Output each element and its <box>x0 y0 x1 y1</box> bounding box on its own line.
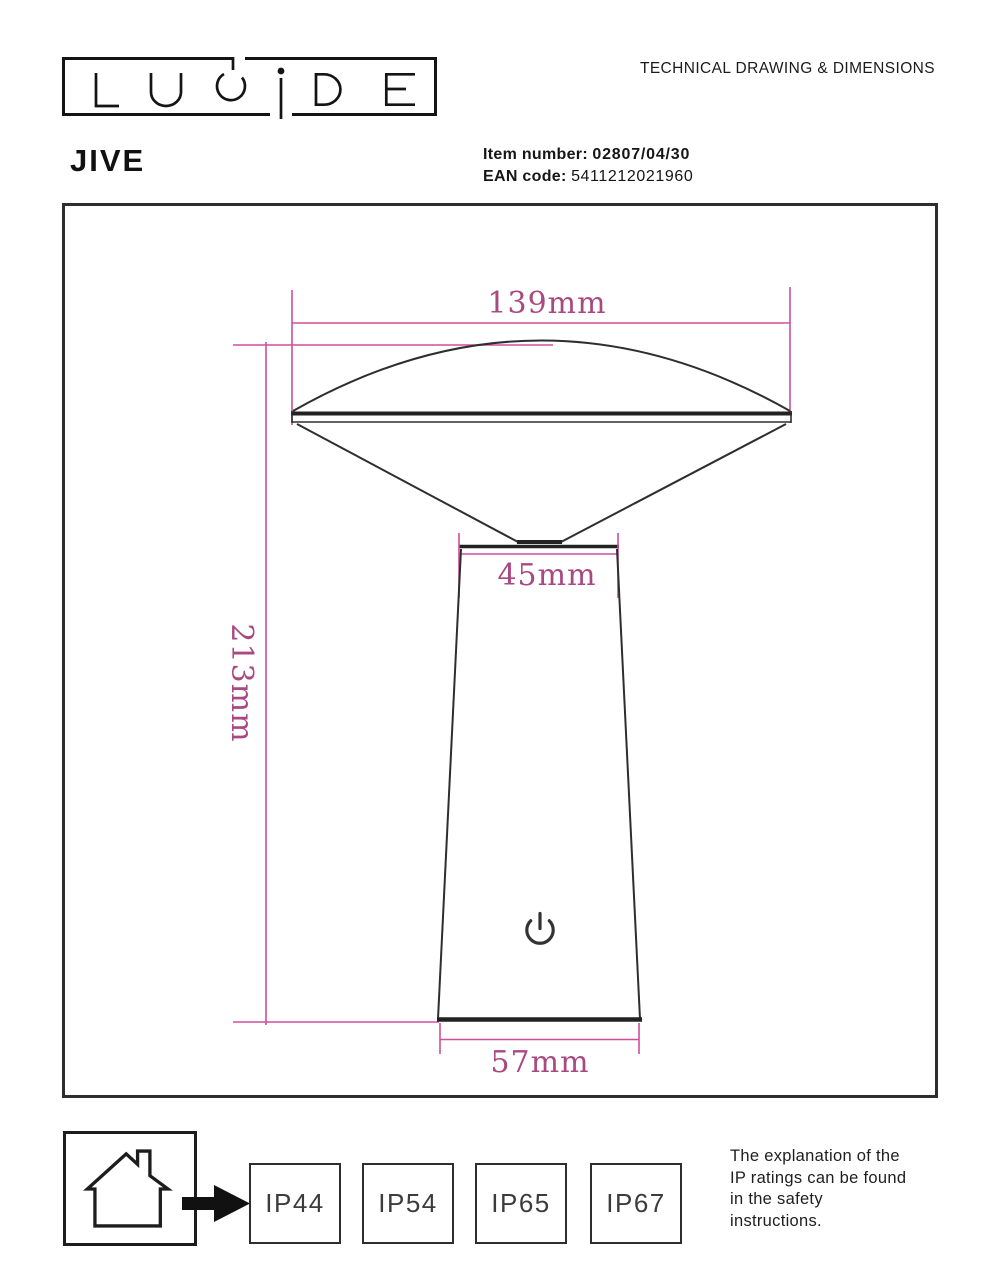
lamp-shade-dome <box>293 341 790 412</box>
ean-code-label: EAN code: <box>483 168 567 185</box>
ip-rating-badge-ip67: IP67 <box>590 1163 682 1244</box>
lamp-shade-cone-left <box>297 424 518 542</box>
ip-note-line-1: The explanation of the <box>730 1146 906 1168</box>
technical-drawing: 139mm 213mm 45mm 57mm <box>62 203 938 1098</box>
power-icon <box>527 914 553 944</box>
logo-letter-D <box>315 73 341 106</box>
lucide-logo <box>62 57 437 125</box>
lamp-shade-cone-right <box>561 424 786 542</box>
logo-letter-L <box>96 73 119 106</box>
indoor-use-box <box>63 1131 197 1246</box>
dim-139-label: 139mm <box>487 286 606 321</box>
house-icon <box>66 1134 194 1243</box>
ip-rating-badge-ip44: IP44 <box>249 1163 341 1244</box>
ip44-label: IP44 <box>265 1188 325 1219</box>
item-number-label: Item number: <box>483 146 588 163</box>
technical-drawing-page: { "header": { "brand": "LUCIDE", "logo_l… <box>0 0 992 1280</box>
ip-note-line-2: IP ratings can be found <box>730 1168 906 1190</box>
dim-57-label: 57mm <box>490 1045 589 1080</box>
drawing-frame <box>64 205 937 1097</box>
ean-code-row: EAN code: 5411212021960 <box>483 166 693 188</box>
lamp-body-left-edge <box>438 549 461 1019</box>
dim-213-label: 213mm <box>224 623 259 742</box>
logo-letter-i-dot <box>278 68 285 75</box>
dim-45-label: 45mm <box>497 558 596 593</box>
logo-box-border-sides <box>64 57 436 116</box>
arrow-right-icon <box>180 1183 252 1225</box>
lamp-body-right-edge <box>617 549 640 1019</box>
ip65-label: IP65 <box>491 1188 551 1219</box>
ip67-label: IP67 <box>606 1188 666 1219</box>
logo-letter-E <box>386 74 415 104</box>
ip-rating-badge-ip54: IP54 <box>362 1163 454 1244</box>
document-title: TECHNICAL DRAWING & DIMENSIONS <box>560 60 935 78</box>
logo-letter-U <box>151 73 181 106</box>
item-info-block: Item number: 02807/04/30 EAN code: 54112… <box>483 144 693 188</box>
ip-note-line-4: instructions. <box>730 1211 906 1233</box>
ip54-label: IP54 <box>378 1188 438 1219</box>
ip-rating-badge-ip65: IP65 <box>475 1163 567 1244</box>
ip-note-line-3: in the safety <box>730 1189 906 1211</box>
ean-code-value: 5411212021960 <box>571 168 693 185</box>
item-number-row: Item number: 02807/04/30 <box>483 144 693 166</box>
logo-letter-C-power-glyph <box>217 74 245 100</box>
item-number-value: 02807/04/30 <box>592 146 690 163</box>
product-name: JIVE <box>70 143 145 179</box>
ip-ratings-note: The explanation of the IP ratings can be… <box>730 1146 906 1232</box>
